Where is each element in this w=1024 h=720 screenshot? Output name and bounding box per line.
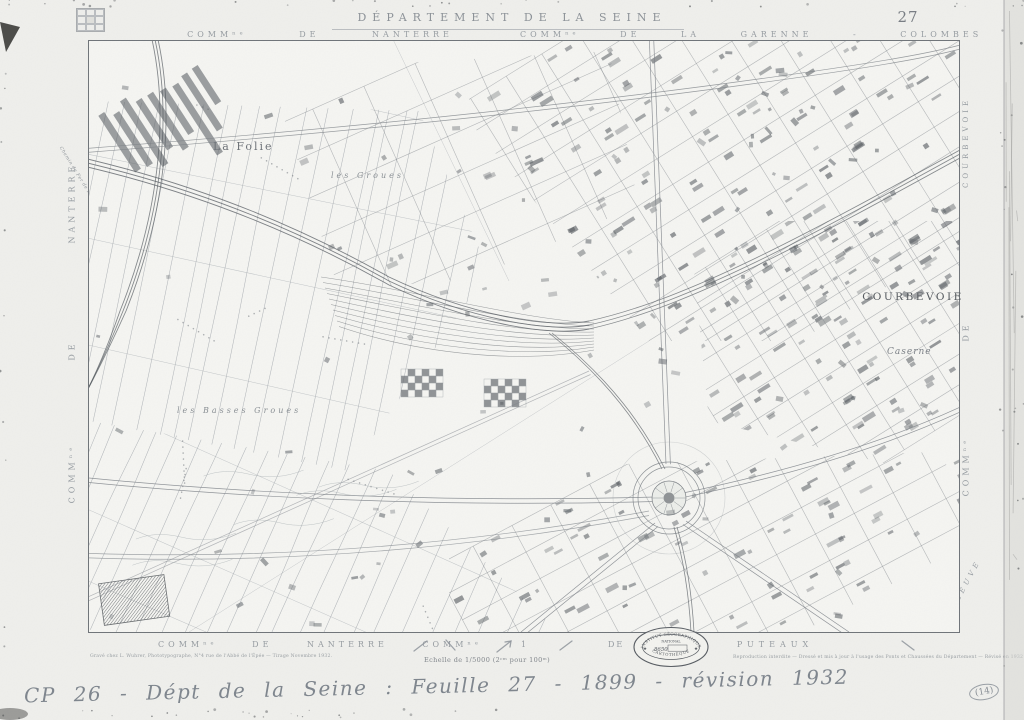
index-cell: [86, 9, 95, 16]
scale-note: Echelle de 1/5000 (2ᶜᵐ pour 100ᵐ): [424, 656, 550, 664]
index-cell: [95, 9, 104, 16]
map-label-les-groues: les Groues: [331, 171, 404, 180]
map-engraving: [89, 41, 959, 632]
scanned-map-sheet: DÉPARTEMENT DE LA SEINE 27 COMMⁿᵉ DE NAN…: [0, 0, 1024, 720]
index-cell: [77, 24, 86, 31]
margin-bottom-de: DE: [608, 640, 624, 649]
stamp-national-text: NATIONAL: [661, 639, 681, 643]
index-cell: [86, 24, 95, 31]
corner-pencil-number: (14): [968, 681, 1001, 702]
sheet-number: 27: [878, 8, 938, 26]
margin-bottom-left-commune: COMMⁿᵉ DE NANTERRE COMMⁿᵉ: [150, 640, 490, 649]
map-title: DÉPARTEMENT DE LA SEINE: [302, 11, 722, 24]
sheet-index-grid: [76, 8, 105, 32]
margin-bottom-puteaux: PUTEAUX: [720, 640, 830, 649]
map-label-caserne: Caserne: [887, 347, 932, 357]
map-label-courbevoie: COURBEVOIE: [849, 291, 977, 303]
engraver-imprint: Gravé chez L. Wuhrer, Phototypographe, N…: [90, 654, 332, 659]
margin-bottom-tick: 1: [521, 640, 526, 649]
map-label-les-basses-groues: les Basses Groues: [177, 406, 301, 415]
margin-top-right-commune: COMMⁿᵉ DE LA GARENNE - COLOMBES: [520, 30, 950, 39]
index-cell: [95, 24, 104, 31]
map-frame: La Folie les Groues les Basses Groues CO…: [88, 40, 960, 633]
margin-right-de: DE: [962, 292, 971, 372]
margin-right-courbevoie: COURBEVOIE: [962, 108, 970, 188]
reproduction-imprint: Reproduction interdite — Dressé et mis à…: [733, 655, 1023, 660]
index-cell: [95, 16, 104, 23]
handwritten-catalogue-note: CP 26 - Dépt de la Seine : Feuille 27 - …: [24, 665, 849, 708]
index-cell: [77, 9, 86, 16]
margin-left-commune: COMMⁿᵉ: [68, 434, 77, 514]
margin-top-left-commune: COMMⁿᵉ DE NANTERRE: [140, 30, 500, 39]
margin-left-de: DE: [68, 311, 77, 391]
cartotheque-stamp: INSTITUT GÉOGRAPHIQUE NATIONAL ★ ★ 8650 …: [632, 626, 710, 668]
index-cell: [77, 16, 86, 23]
margin-right-commune: COMMⁿᵉ: [962, 427, 971, 507]
index-cell-current: [86, 16, 95, 23]
map-label-la-folie: La Folie: [213, 140, 274, 153]
